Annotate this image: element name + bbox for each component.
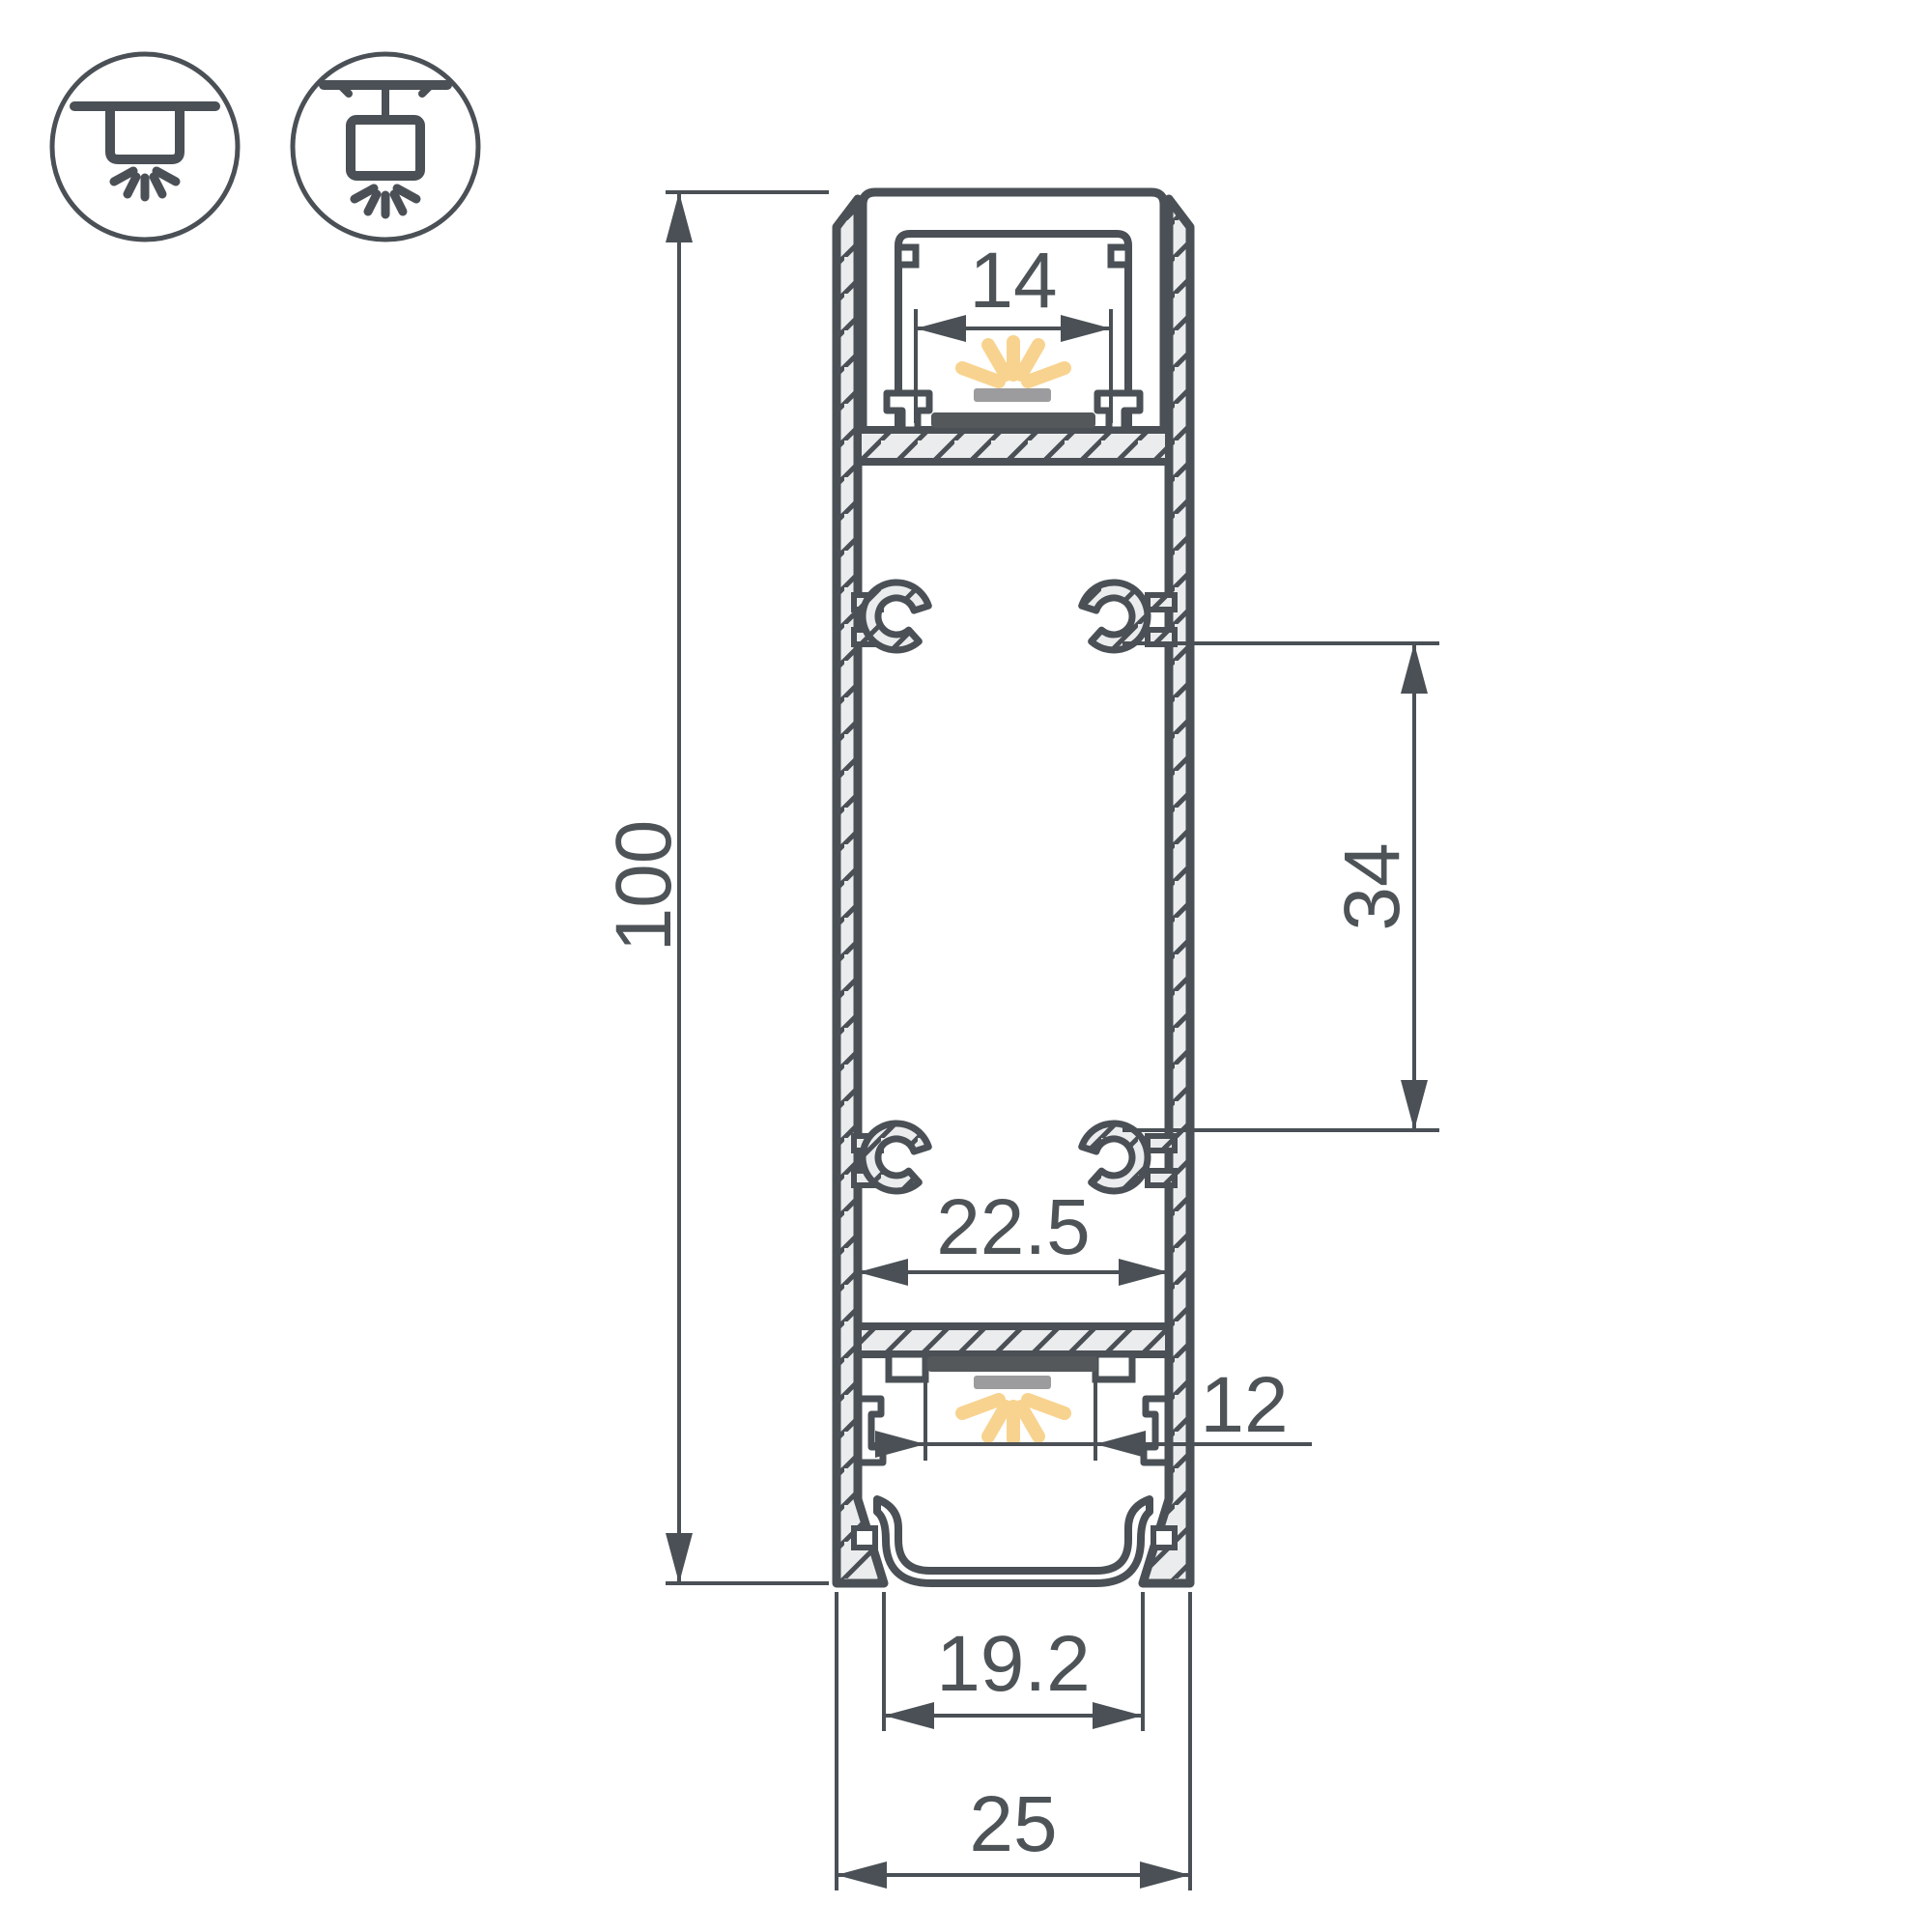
dimension-overall-height: 100	[600, 192, 829, 1583]
arrowhead	[1140, 1861, 1190, 1889]
icon-circle	[52, 54, 238, 240]
left-strip-bracket	[889, 1354, 925, 1379]
light-rays-icon	[114, 171, 176, 197]
dimension-label-overall-width: 25	[969, 1780, 1057, 1868]
arrowhead	[1401, 643, 1428, 694]
boss-stem	[1148, 595, 1175, 610]
dimension-label-boss-spacing: 34	[1328, 842, 1416, 930]
arrowhead	[837, 1861, 887, 1889]
led-strip	[927, 1356, 1097, 1372]
dimension-label-bottom-opening: 19.2	[936, 1620, 1091, 1708]
arrowhead	[1061, 315, 1111, 342]
right-strip-bracket	[1095, 1354, 1132, 1379]
diffuser-tray	[877, 1499, 1150, 1583]
arrowhead	[1093, 1702, 1143, 1729]
light-rays-icon	[355, 188, 416, 214]
dimension-label-top-led-opening: 14	[969, 237, 1057, 325]
dimension-label-inner-cavity-width: 22.5	[936, 1183, 1091, 1271]
arrowhead	[875, 1431, 925, 1458]
surface-mount-icon	[52, 54, 238, 240]
screw-bosses	[854, 582, 1175, 1191]
technical-drawing-canvas: 100 14 34 22.5	[0, 0, 1932, 1932]
led-strip	[931, 412, 1095, 428]
arrowhead	[1095, 1431, 1146, 1458]
right-strip-ledge	[1097, 393, 1140, 430]
right-retainer-lip	[1111, 247, 1128, 265]
arrowhead	[916, 315, 966, 342]
dimension-label-bottom-led-opening: 12	[1200, 1361, 1288, 1449]
boss-stem	[1148, 1171, 1175, 1185]
left-retainer-lip	[898, 247, 916, 265]
boss-stem	[1148, 1136, 1175, 1151]
arrowhead	[1401, 1080, 1428, 1130]
screw-boss	[1082, 1123, 1148, 1191]
arrowhead	[884, 1702, 934, 1729]
top-divider-wall	[858, 430, 1169, 462]
arrowhead	[666, 1533, 693, 1583]
arrowhead	[666, 192, 693, 242]
screw-boss	[1082, 582, 1148, 650]
light-rays-down	[962, 1400, 1065, 1439]
left-strip-ledge	[887, 393, 929, 430]
arrowhead	[858, 1259, 908, 1286]
bottom-led-channel	[858, 1354, 1169, 1583]
dimension-label-overall-height: 100	[600, 820, 688, 952]
left-foot-notch	[854, 1528, 875, 1548]
right-foot-notch	[1153, 1528, 1175, 1548]
light-rays-up	[962, 342, 1065, 382]
dimension-inner-cavity-width: 22.5	[858, 1183, 1169, 1286]
mount-icons	[52, 54, 478, 240]
bottom-divider-wall	[858, 1326, 1169, 1354]
profile-cross-section	[837, 192, 1190, 1583]
luminaire-box	[351, 120, 420, 176]
screw-boss	[863, 582, 928, 650]
arrowhead	[1119, 1259, 1169, 1286]
luminaire-box	[110, 106, 180, 159]
led-light-bar	[974, 388, 1051, 402]
dimension-bottom-opening: 19.2	[884, 1592, 1143, 1731]
pendant-mount-icon	[293, 54, 478, 240]
screw-boss	[863, 1123, 928, 1191]
led-light-bar	[974, 1376, 1051, 1389]
